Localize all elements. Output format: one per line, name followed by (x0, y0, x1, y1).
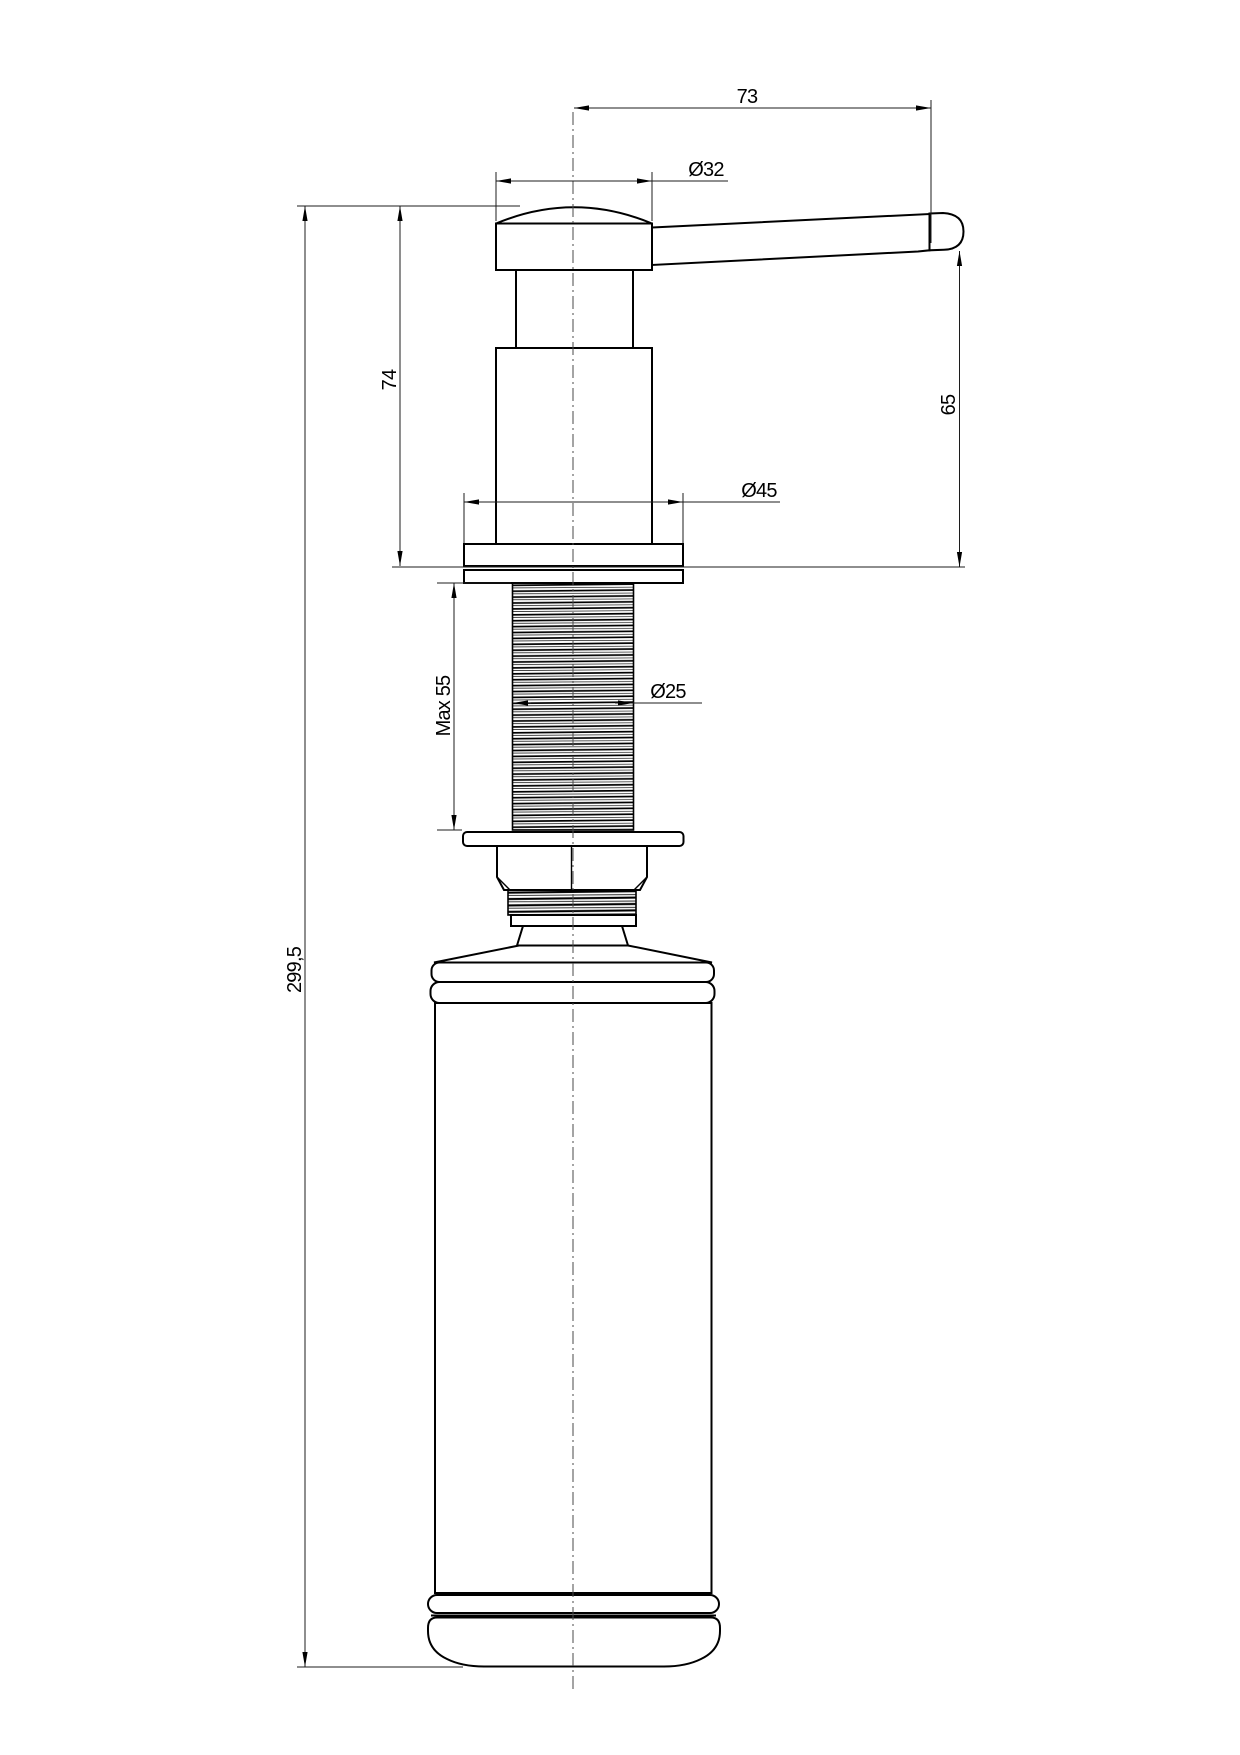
hex-nut (497, 846, 647, 890)
arrowhead-bottom (397, 551, 402, 566)
spout-tip (930, 213, 964, 250)
dimension-mounting-thread-length: Max 55 (433, 583, 511, 830)
bottle-bottom-cap (428, 1618, 720, 1667)
spout-tube (652, 214, 930, 265)
pump-stem (516, 270, 633, 348)
arrowhead-right (916, 105, 931, 110)
arrowhead-top (302, 206, 307, 221)
dim-label-spout-reach: 73 (737, 86, 758, 108)
arrowhead-left (464, 499, 479, 504)
technical-drawing-canvas: 73 Ø32 74 65 Ø45 (0, 0, 1240, 1755)
arrowhead-right (637, 178, 652, 183)
arrowhead-top (957, 251, 962, 266)
dim-label-spout-outlet-height: 65 (938, 394, 960, 415)
arrowhead-bottom (302, 1652, 307, 1667)
pump-body (496, 348, 652, 544)
arrowhead-bottom (451, 815, 456, 830)
dimension-spout-outlet-height: 65 (938, 251, 962, 567)
arrowhead-bottom (957, 552, 962, 567)
lower-thread-stub (508, 890, 636, 915)
spout (652, 213, 964, 265)
arrowhead-left (574, 105, 589, 110)
dim-label-head-diameter: Ø32 (688, 159, 724, 181)
bottle (428, 926, 720, 1667)
arrowhead-top (451, 583, 456, 598)
dim-label-thread-diameter: Ø25 (650, 681, 686, 703)
arrowhead-left (496, 178, 511, 183)
arrowhead-top (397, 206, 402, 221)
dim-label-flange-diameter: Ø45 (741, 480, 777, 502)
soap-dispenser-drawing: 73 Ø32 74 65 Ø45 (0, 0, 1240, 1755)
dim-label-mounting-thread-length: Max 55 (433, 675, 455, 736)
dim-label-head-height: 74 (379, 369, 401, 390)
dim-label-overall-height: 299,5 (284, 946, 306, 993)
arrowhead-right (668, 499, 683, 504)
pump-cap-dome (496, 207, 652, 223)
pump-cap (496, 224, 652, 271)
